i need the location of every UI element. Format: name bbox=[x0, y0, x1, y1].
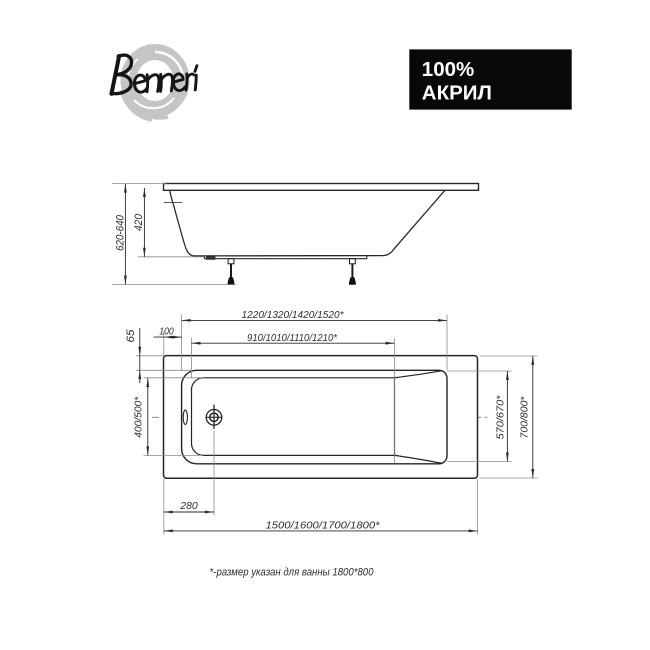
svg-text:100%: 100% bbox=[422, 58, 474, 81]
svg-text:65: 65 bbox=[125, 329, 137, 343]
svg-text:*-размер указан для ванны 1800: *-размер указан для ванны 1800*800 bbox=[210, 566, 375, 578]
svg-text:АКРИЛ: АКРИЛ bbox=[422, 81, 492, 104]
svg-text:1500/1600/1700/1800*: 1500/1600/1700/1800* bbox=[266, 521, 381, 532]
svg-text:1220/1320/1420/1520*: 1220/1320/1420/1520* bbox=[242, 310, 345, 321]
svg-text:700/800*: 700/800* bbox=[519, 395, 530, 438]
svg-text:570/670*: 570/670* bbox=[495, 394, 506, 439]
svg-text:100: 100 bbox=[159, 327, 174, 338]
svg-text:400/500*: 400/500* bbox=[134, 396, 145, 438]
svg-text:280: 280 bbox=[179, 501, 198, 512]
svg-text:910/1010/1110/1210*: 910/1010/1110/1210* bbox=[247, 333, 338, 344]
svg-text:620-640: 620-640 bbox=[115, 214, 127, 251]
svg-text:420: 420 bbox=[133, 213, 145, 231]
